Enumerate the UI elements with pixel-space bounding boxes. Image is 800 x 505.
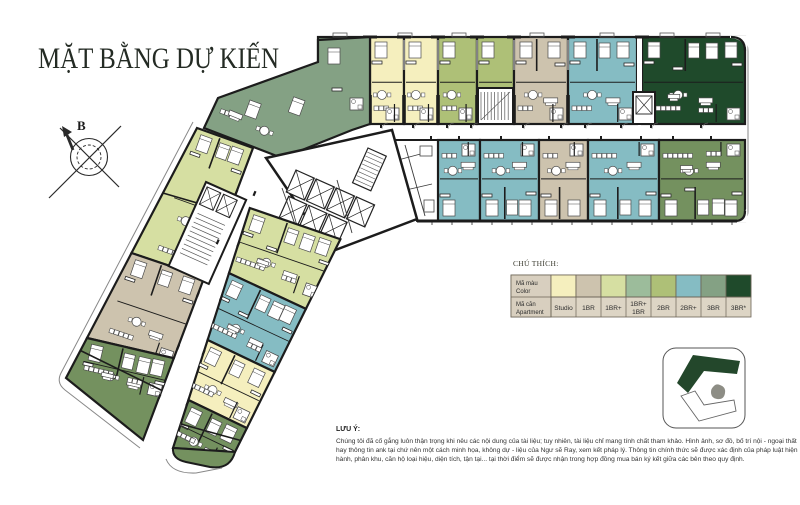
- svg-text:LƯU Ý:: LƯU Ý:: [336, 424, 360, 433]
- svg-text:Color: Color: [516, 289, 530, 295]
- svg-text:CHÚ THÍCH:: CHÚ THÍCH:: [513, 258, 559, 268]
- svg-text:Apartment: Apartment: [516, 310, 544, 316]
- svg-text:1BR+: 1BR+: [630, 301, 647, 308]
- svg-text:3BR: 3BR: [707, 305, 720, 312]
- svg-text:3BR*: 3BR*: [731, 305, 747, 312]
- svg-text:2BR: 2BR: [657, 305, 670, 312]
- svg-text:Mã màu: Mã màu: [516, 281, 538, 287]
- svg-text:1BR: 1BR: [632, 309, 645, 316]
- svg-text:1BR+: 1BR+: [605, 305, 622, 312]
- svg-text:B: B: [77, 118, 86, 133]
- svg-text:hay thông tin ank tại chứ nên: hay thông tin ank tại chứ nên một cách m…: [336, 445, 798, 454]
- svg-text:hành, phân khu, căn hộ loại hi: hành, phân khu, căn hộ loại hiệu, diện t…: [336, 454, 745, 463]
- svg-text:Chúng tôi đã cố gắng luôn thận: Chúng tôi đã cố gắng luôn thận trọng khi…: [336, 436, 797, 445]
- svg-text:MẶT BẰNG DỰ KIẾN: MẶT BẰNG DỰ KIẾN: [38, 41, 279, 75]
- svg-text:1BR: 1BR: [582, 305, 595, 312]
- svg-text:2BR+: 2BR+: [680, 305, 697, 312]
- svg-text:Studio: Studio: [554, 305, 573, 312]
- svg-text:Mã căn: Mã căn: [516, 302, 536, 308]
